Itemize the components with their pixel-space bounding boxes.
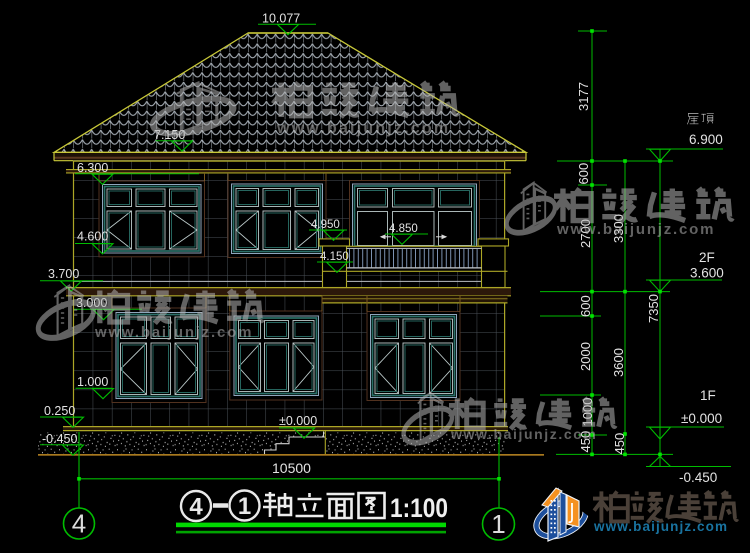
svg-text:www.baijunjz.com: www.baijunjz.com (276, 120, 450, 137)
svg-text:1:100: 1:100 (390, 493, 448, 523)
svg-text:4.850: 4.850 (389, 223, 418, 235)
svg-text:600: 600 (578, 295, 593, 317)
svg-text:-0.450: -0.450 (42, 432, 77, 446)
svg-text:1: 1 (238, 493, 251, 520)
svg-text:10500: 10500 (272, 460, 311, 476)
svg-text:4.600: 4.600 (77, 230, 108, 244)
svg-text:600: 600 (576, 163, 591, 185)
svg-text:0.250: 0.250 (44, 404, 75, 418)
svg-text:10.077: 10.077 (262, 12, 300, 26)
svg-text:±0.000: ±0.000 (279, 414, 317, 428)
svg-text:6.900: 6.900 (689, 132, 723, 147)
svg-text:1F: 1F (700, 388, 716, 403)
svg-text:www.baijunjz.com: www.baijunjz.com (94, 324, 253, 341)
svg-text:±0.000: ±0.000 (681, 411, 722, 426)
svg-text:4.950: 4.950 (311, 219, 340, 231)
svg-text:3.700: 3.700 (48, 267, 79, 281)
svg-text:450: 450 (612, 433, 627, 455)
svg-text:1.000: 1.000 (77, 375, 108, 389)
svg-text:4: 4 (189, 494, 203, 521)
svg-text:www.baijunjz.com: www.baijunjz.com (556, 221, 715, 238)
svg-text:3.600: 3.600 (690, 266, 724, 281)
svg-text:4: 4 (72, 509, 86, 539)
svg-text:3600: 3600 (611, 348, 626, 377)
svg-text:6.300: 6.300 (77, 161, 108, 175)
svg-text:www.baijunjz.com: www.baijunjz.com (593, 519, 728, 534)
svg-text:3177: 3177 (576, 82, 591, 111)
svg-text:4.150: 4.150 (320, 251, 349, 263)
svg-text:-0.450: -0.450 (679, 470, 717, 485)
svg-text:www.baijunjz.com: www.baijunjz.com (450, 426, 597, 442)
svg-text:2F: 2F (699, 250, 715, 265)
svg-text:1: 1 (491, 509, 505, 539)
svg-text:7350: 7350 (646, 294, 661, 323)
svg-text:2000: 2000 (578, 342, 593, 371)
